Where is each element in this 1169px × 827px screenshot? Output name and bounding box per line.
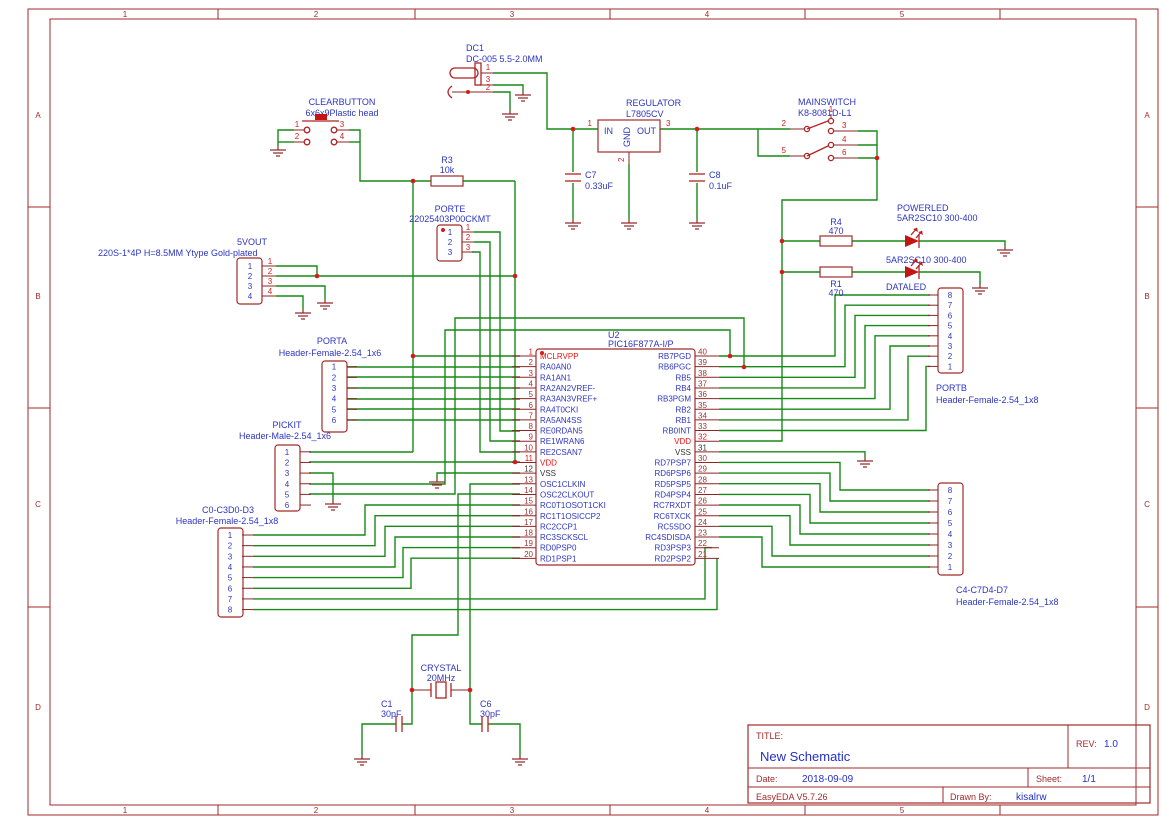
pin-name: RB6PGC: [658, 363, 691, 372]
rev-value: 1.0: [1104, 739, 1118, 750]
date-label: Date:: [756, 774, 778, 784]
c6-value: 30pF: [480, 709, 501, 719]
wire: [276, 286, 325, 299]
sheet-label: Sheet:: [1036, 774, 1062, 784]
pin-name: RC4SDISDA: [645, 533, 691, 542]
pin-number: 6: [228, 584, 233, 593]
r3-value: 10k: [440, 165, 455, 175]
mainswitch-pin5: 5: [782, 146, 787, 155]
pin-number: 3: [448, 248, 453, 257]
wire: [719, 537, 930, 567]
c6-ref: C6: [480, 699, 492, 709]
wire: [253, 516, 520, 546]
pin-number: 1: [948, 563, 953, 572]
pin-number: 2: [529, 358, 534, 367]
pickit-ref: PICKIT: [272, 420, 302, 430]
pin-number: 1: [529, 348, 534, 357]
ground-icon: [429, 478, 445, 488]
pin-name: VSS: [540, 469, 556, 478]
pin-number: 23: [698, 529, 707, 538]
wire: [719, 326, 930, 388]
mainswitch-pin1: 1: [829, 105, 834, 114]
r3-ref: R3: [441, 155, 453, 165]
pin-number: 32: [698, 433, 707, 442]
pin-name: RD6PSP6: [655, 469, 692, 478]
pin-name: RB7PGD: [658, 352, 691, 361]
w-5v: [719, 131, 877, 441]
wire: [472, 252, 520, 452]
pin-number: 4: [948, 530, 953, 539]
pin-name: RD0PSP0: [540, 544, 577, 553]
mainswitch-pin6: 6: [842, 148, 847, 157]
wire: [253, 537, 520, 567]
frame-col-label: 3: [510, 806, 515, 815]
pin-name: OSC2CLKOUT: [540, 490, 594, 499]
porta-connector[interactable]: PORTA Header-Female-2.54_1x6 123456: [279, 336, 382, 432]
c4c7-model: Header-Female-2.54_1x8: [956, 597, 1059, 607]
pad-number: 1: [466, 223, 471, 232]
wire: [402, 690, 412, 724]
pin-name: RA2AN2VREF-: [540, 384, 595, 393]
pin-number: 18: [524, 529, 533, 538]
pin-name: RB2: [675, 405, 691, 414]
pin-number: 33: [698, 422, 707, 431]
sleeve-arc: [448, 86, 452, 98]
pin-name: RB1: [675, 416, 691, 425]
c6-capacitor[interactable]: C6 30pF: [480, 699, 501, 732]
pin-name: OSC1CLKIN: [540, 480, 586, 489]
pin-number: 37: [698, 379, 707, 388]
pin-number: 7: [228, 595, 233, 604]
c8-capacitor[interactable]: C8 0.1uF: [689, 170, 733, 191]
frame-col-label: 4: [705, 10, 710, 19]
frame-row-label: A: [35, 111, 41, 120]
pin-name: RA3AN3VREF+: [540, 395, 597, 404]
pin-name: RA1AN1: [540, 373, 572, 382]
regulator-pin3: 3: [666, 119, 671, 128]
wire: [474, 232, 520, 431]
pin-number: 4: [228, 563, 233, 572]
pin-number: 39: [698, 358, 707, 367]
pin-number: 6: [285, 501, 290, 510]
pin-name: RC0T1OSOT1CKI: [540, 501, 606, 510]
pin-name: RE0RDAN5: [540, 427, 583, 436]
portb-ref: PORTB: [936, 383, 967, 393]
wire: [719, 484, 930, 512]
wire: [919, 272, 980, 284]
frame-col-label: 5: [900, 806, 905, 815]
dataled-model: 5AR2SC10 300-400: [886, 255, 967, 265]
mainswitch-pin4: 4: [842, 135, 847, 144]
pin-number: 1: [285, 448, 290, 457]
wire: [278, 130, 294, 146]
frame-row-label: B: [1144, 292, 1149, 301]
pin-name: RC6TXCK: [654, 512, 692, 521]
pin-number: 1: [332, 363, 337, 372]
frame-row-label: B: [35, 292, 40, 301]
tool-version: EasyEDA V5.7.26: [756, 792, 828, 802]
ground-icon: [515, 91, 531, 101]
sheet-value: 1/1: [1082, 774, 1096, 785]
frame-col-label: 2: [314, 10, 319, 19]
pin-number: 2: [448, 238, 453, 247]
pin-name: RC3SCKSCL: [540, 533, 589, 542]
pin-number: 4: [248, 292, 253, 301]
pin-number: 3: [529, 369, 534, 378]
pin-number: 20: [524, 550, 533, 559]
pin-number: 8: [948, 486, 953, 495]
clearbutton-pin1: 1: [295, 120, 300, 129]
pin-number: 1: [448, 228, 453, 237]
wire: [719, 516, 930, 545]
ground-icon: [857, 457, 873, 467]
pin-number: 5: [285, 490, 290, 499]
frame-col-label: 2: [314, 806, 319, 815]
pin-number: 25: [698, 507, 707, 516]
pin-number: 16: [524, 507, 533, 516]
dc1-ref: DC1: [466, 43, 484, 53]
title-block: TITLE: New Schematic REV: 1.0 Date: 2018…: [748, 725, 1150, 803]
mainswitch-pin3: 3: [842, 121, 847, 130]
wire: [493, 92, 510, 110]
wire: [719, 452, 865, 457]
wire: [276, 296, 303, 309]
frame-col-label: 4: [705, 806, 710, 815]
ground-icon: [295, 309, 311, 319]
dataled[interactable]: 5AR2SC10 300-400 DATALED: [886, 255, 967, 292]
pin-name: RB0INT: [663, 427, 692, 436]
regulator-pin2: 2: [617, 157, 626, 162]
pin-number: 21: [698, 550, 707, 559]
wire: [349, 130, 431, 181]
vout5-ref: 5VOUT: [237, 237, 268, 247]
c1-value: 30pF: [381, 709, 402, 719]
clearbutton-ref: CLEARBUTTON: [309, 97, 376, 107]
u2-model: PIC16F877A-I/P: [608, 339, 674, 349]
date-value: 2018-09-09: [802, 774, 854, 785]
dc1-jack[interactable]: DC1 DC-005 5.5-2.0MM 1 3 2: [448, 43, 543, 98]
c4c7-connector[interactable]: 87654321 C4-C7D4-D7 Header-Female-2.54_1…: [928, 483, 1059, 607]
pin-name: RC2CCP1: [540, 522, 578, 531]
regulator-ref: REGULATOR: [626, 98, 682, 108]
pin-number: 17: [524, 518, 533, 527]
portb-model: Header-Female-2.54_1x8: [936, 395, 1039, 405]
clearbutton[interactable]: CLEARBUTTON 6x6x9Plastic head 1 2 3 4: [294, 97, 379, 145]
pin-number: 14: [524, 486, 533, 495]
clearbutton-pin4: 4: [340, 132, 345, 141]
r1-resistor[interactable]: R1 470: [820, 267, 852, 298]
vout5-model: 220S-1*4P H=8.5MM Ytype Gold-plated: [98, 248, 258, 258]
pin-number: 1: [248, 262, 253, 271]
pin-number: 5: [228, 574, 233, 583]
pin-name: RD4PSP4: [655, 490, 692, 499]
pin-number: 4: [332, 395, 337, 404]
frame-row-label: D: [1144, 703, 1150, 712]
pin-name: RA0AN0: [540, 363, 572, 372]
pin-number: 1: [948, 362, 953, 371]
pin-number: 5: [529, 390, 534, 399]
pin-number: 38: [698, 369, 707, 378]
frame-col-label: 1: [123, 10, 128, 19]
ground-icon: [325, 500, 341, 510]
pin-number: 24: [698, 518, 707, 527]
pin-name: RD5PSP5: [655, 480, 692, 489]
pin-number: 4: [529, 379, 534, 388]
pin-number: 3: [248, 282, 253, 291]
wire: [719, 505, 930, 534]
led-icon: [905, 228, 923, 248]
regulator-gnd-label: GND: [622, 127, 632, 148]
pin-number: 3: [228, 552, 233, 561]
pin-number: 2: [248, 272, 253, 281]
wire: [253, 558, 717, 609]
pin-number: 35: [698, 401, 707, 410]
pin-number: 5: [948, 519, 953, 528]
pin-number: 1: [228, 531, 233, 540]
pin-number: 8: [228, 606, 233, 615]
pin-number: 8: [948, 291, 953, 300]
pad-number: 3: [268, 277, 273, 286]
pin-number: 30: [698, 454, 707, 463]
mainswitch-pin2: 2: [782, 119, 787, 128]
pin-name: RA5AN4SS: [540, 416, 582, 425]
pin-number: 8: [529, 422, 534, 431]
wire: [488, 724, 520, 755]
ground-icon: [689, 219, 705, 229]
c0c3-ref: C0-C3D0-D3: [202, 505, 254, 515]
ground-icon: [270, 146, 286, 156]
schematic-canvas[interactable]: 1 2 3 4 5 1 2 3 4 5 A B C D A B C D: [0, 0, 1169, 827]
rev-label: REV:: [1076, 739, 1097, 749]
title-label: TITLE:: [756, 731, 783, 741]
pin-number: 26: [698, 497, 707, 506]
pin-name: RD1PSP1: [540, 554, 577, 563]
pin-number: 2: [332, 373, 337, 382]
pin-name: RC7RXDT: [653, 501, 691, 510]
pin-number: 19: [524, 539, 533, 548]
pin-name: MCLRVPP: [540, 352, 579, 361]
wire: [719, 473, 930, 501]
pin-name: RD2PSP2: [655, 554, 692, 563]
pin-number: 3: [948, 342, 953, 351]
pin-number: 7: [948, 497, 953, 506]
pin-name: RB3PGM: [657, 395, 691, 404]
wire: [253, 526, 520, 556]
ground-icon: [621, 219, 637, 229]
pin-number: 11: [525, 454, 534, 463]
schematic-page: 1 2 3 4 5 1 2 3 4 5 A B C D A B C D: [0, 0, 1169, 827]
wire: [474, 242, 520, 441]
pin-name: VSS: [675, 448, 691, 457]
pin-name: RC5SDO: [658, 522, 691, 531]
porte-model: 22025403P00CKMT: [409, 214, 491, 224]
frame-col-label: 1: [123, 806, 128, 815]
clearbutton-pin3: 3: [340, 120, 345, 129]
powerled-model: 5AR2SC10 300-400: [897, 213, 978, 223]
pin-number: 29: [698, 465, 707, 474]
dc1-pin1: 1: [486, 63, 491, 72]
portb-connector[interactable]: 87654321 PORTB Header-Female-2.54_1x8: [928, 288, 1039, 405]
pin-number: 2: [228, 542, 233, 551]
mainswitch-ref: MAINSWITCH: [798, 97, 856, 107]
ground-icon: [512, 755, 528, 765]
frame-row-label: A: [1144, 111, 1150, 120]
pin-name: VDD: [674, 437, 691, 446]
pin-number: 2: [948, 552, 953, 561]
c1-ref: C1: [381, 699, 393, 709]
pin-number: 4: [285, 480, 290, 489]
pin-number: 28: [698, 475, 707, 484]
powerled-ref: POWERLED: [897, 203, 949, 213]
r1-value: 470: [828, 288, 843, 298]
mainswitch[interactable]: MAINSWITCH K8-8081D-L1 2 5 1 3 4 6: [782, 97, 858, 161]
pin-name: RD7PSP7: [655, 459, 692, 468]
pin-number: 15: [524, 497, 533, 506]
ground-icon: [997, 246, 1013, 256]
wire: [919, 241, 1005, 246]
pickit-connector[interactable]: PICKIT Header-Male-2.54_1x6 123456: [239, 420, 331, 511]
pin-number: 3: [285, 469, 290, 478]
pin-name: RE2CSAN7: [540, 448, 583, 457]
pin-number: 7: [529, 411, 534, 420]
ground-icon: [502, 110, 518, 120]
c7-value: 0.33uF: [585, 181, 614, 191]
pin-number: 13: [524, 475, 533, 484]
r4-resistor[interactable]: R4 470: [820, 217, 852, 246]
pin-number: 6: [948, 508, 953, 517]
pin-name: RC1T1OSICCP2: [540, 512, 601, 521]
regulator-pin1: 1: [588, 119, 593, 128]
pin-number: 34: [698, 411, 707, 420]
pickit-model: Header-Male-2.54_1x6: [239, 431, 331, 441]
ground-icon: [565, 219, 581, 229]
frame-row-label: C: [1144, 500, 1150, 509]
pin-number: 3: [332, 384, 337, 393]
wire: [719, 526, 930, 556]
wire: [412, 494, 520, 690]
pin-number: 10: [524, 443, 533, 452]
wire: [719, 462, 930, 490]
pin-number: 6: [948, 311, 953, 320]
drawn-by-value: kisalrw: [1016, 792, 1047, 803]
crystal-ref: CRYSTAL: [421, 663, 462, 673]
crystal[interactable]: CRYSTAL 20MHz: [412, 663, 470, 698]
mainswitch-model: K8-8081D-L1: [798, 108, 852, 118]
pin-number: 3: [948, 541, 953, 550]
u2-mcu[interactable]: U2 PIC16F877A-I/P 1MCLRVPP2RA0AN03RA1AN1…: [512, 330, 719, 565]
frame-row-label: D: [35, 703, 41, 712]
c8-ref: C8: [709, 170, 721, 180]
pin-number: 4: [948, 332, 953, 341]
vout5-connector[interactable]: 5VOUT 220S-1*4P H=8.5MM Ytype Gold-plate…: [98, 237, 276, 304]
pin-number: 5: [948, 322, 953, 331]
pad-number: 2: [466, 233, 471, 242]
wire: [470, 484, 520, 690]
wire: [309, 473, 333, 500]
pin-name: RA4T0CKI: [540, 405, 578, 414]
porta-ref: PORTA: [317, 336, 347, 346]
frame-col-label: 3: [510, 10, 515, 19]
wire: [719, 494, 930, 523]
pin-number: 36: [698, 390, 707, 399]
pin-name: RE1WRAN6: [540, 437, 585, 446]
c1-capacitor[interactable]: C1 30pF: [381, 699, 402, 732]
pad-number: 2: [268, 267, 273, 276]
pin-number: 5: [332, 405, 337, 414]
ground-icon: [317, 299, 333, 309]
dataled-ref: DATALED: [886, 282, 927, 292]
porte-ref: PORTE: [435, 204, 466, 214]
pin-number: 12: [524, 465, 533, 474]
pin-name: RB4: [675, 384, 691, 393]
pin-number: 2: [948, 352, 953, 361]
clearbutton-pin2: 2: [295, 132, 300, 141]
wire: [253, 558, 520, 588]
pin-number: 27: [698, 486, 707, 495]
wire: [276, 266, 317, 276]
wire: [253, 548, 520, 578]
porta-model: Header-Female-2.54_1x6: [279, 348, 382, 358]
wire: [493, 85, 523, 91]
ground-icon: [354, 755, 370, 765]
pin-number: 6: [332, 416, 337, 425]
r4-value: 470: [828, 226, 843, 236]
regulator[interactable]: REGULATOR L7805CV IN OUT GND 1 3 2: [588, 98, 682, 164]
pin-number: 40: [698, 348, 707, 357]
drawn-by-label: Drawn By:: [950, 792, 992, 802]
pad-number: 1: [268, 257, 273, 266]
schematic-title: New Schematic: [760, 749, 851, 764]
pin-number: 9: [529, 433, 534, 442]
r3-resistor[interactable]: R3 10k: [431, 155, 463, 186]
pin-name: RD3PSP3: [655, 544, 692, 553]
c7-capacitor[interactable]: C7 0.33uF: [565, 170, 614, 191]
frame-row-label: C: [35, 500, 41, 509]
regulator-model: L7805CV: [626, 109, 664, 119]
regulator-out-label: OUT: [637, 126, 657, 136]
c8-value: 0.1uF: [709, 181, 733, 191]
regulator-in-label: IN: [604, 126, 613, 136]
pin-number: 22: [698, 539, 707, 548]
pin-number: 6: [529, 401, 534, 410]
c0c3-model: Header-Female-2.54_1x8: [176, 516, 279, 526]
pad-number: 3: [466, 243, 471, 252]
c4c7-ref: C4-C7D4-D7: [956, 585, 1008, 595]
c0c3-connector[interactable]: C0-C3D0-D3 Header-Female-2.54_1x8 123456…: [176, 505, 279, 617]
frame-col-label: 5: [900, 10, 905, 19]
pin-number: 31: [698, 443, 707, 452]
pin-number: 2: [285, 458, 290, 467]
pin-name: RB5: [675, 373, 691, 382]
dc1-pin2: 2: [486, 83, 491, 92]
c7-ref: C7: [585, 170, 597, 180]
pin-name: VDD: [540, 459, 557, 468]
pin-number: 7: [948, 301, 953, 310]
ground-icon: [972, 284, 988, 294]
wire: [437, 473, 520, 478]
pad-number: 4: [268, 287, 273, 296]
wire: [362, 724, 396, 755]
